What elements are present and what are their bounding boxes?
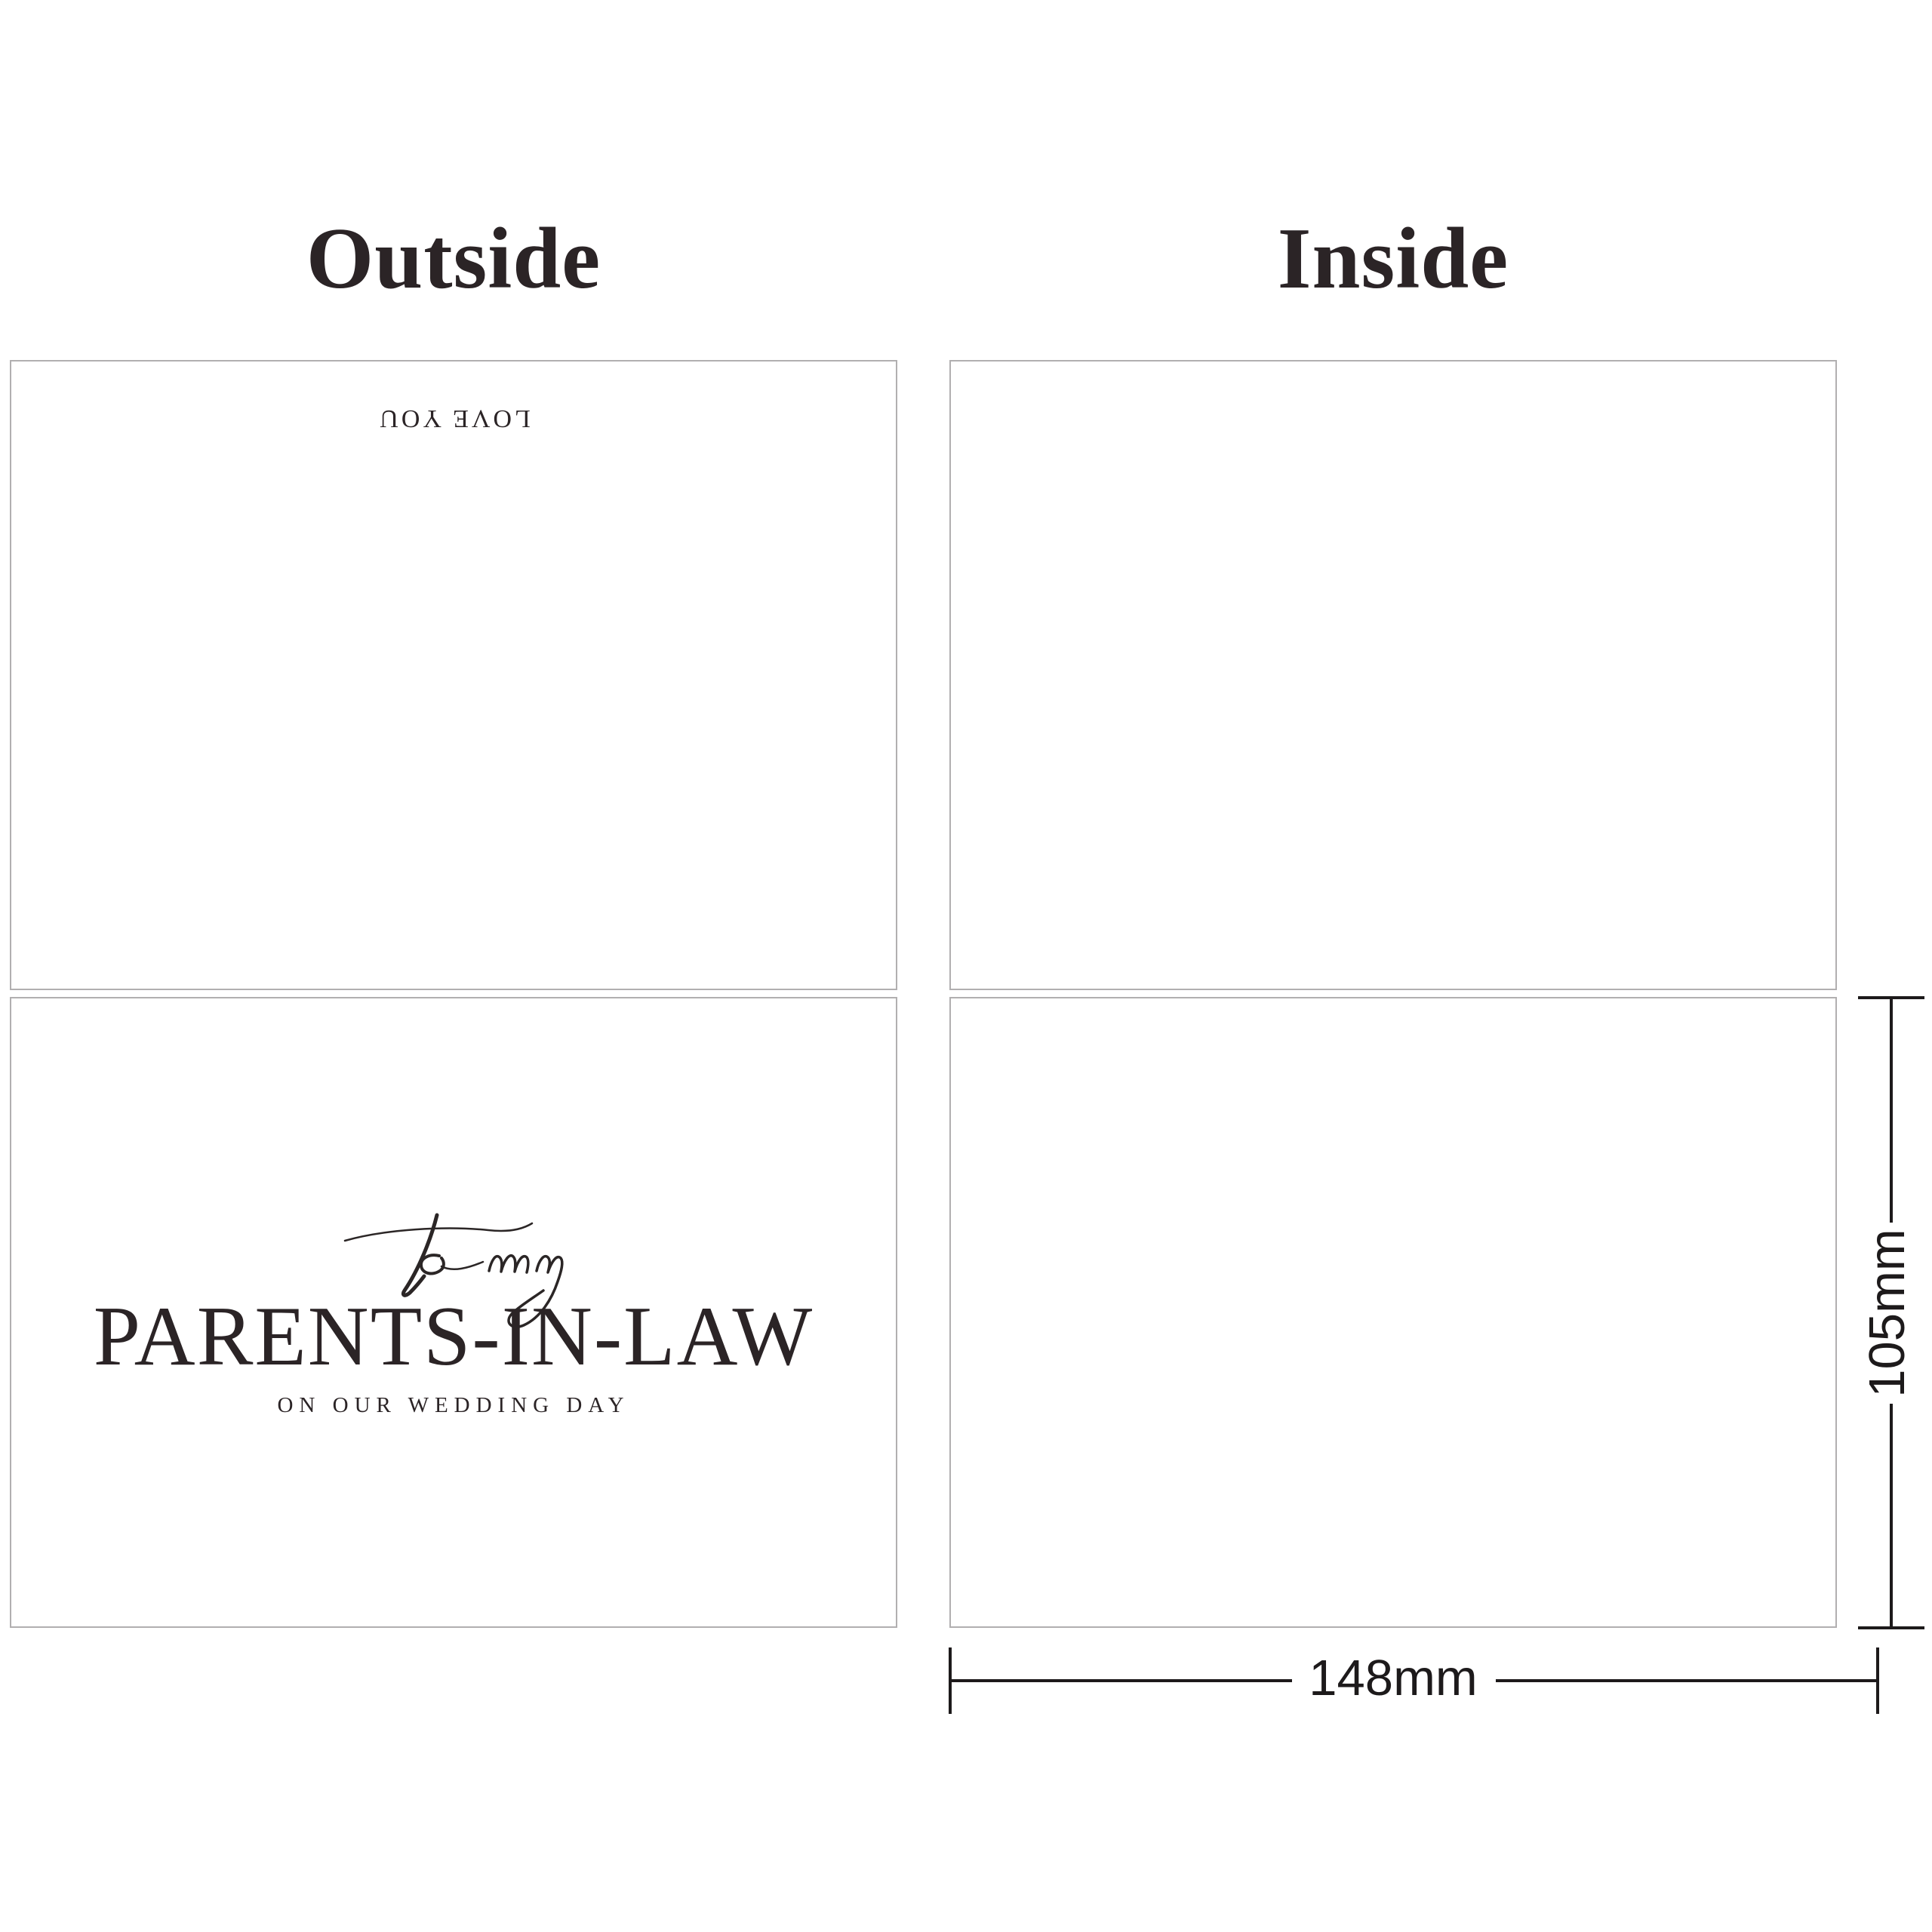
card-template-sheet: Outside Inside LOVE YOU PARENTS-IN-LAW O… <box>0 0 1932 1932</box>
height-dimension-line-lower <box>1890 1404 1893 1628</box>
width-dimension-right-cap <box>1876 1647 1879 1714</box>
width-dimension-label: 148mm <box>1280 1653 1506 1703</box>
height-dimension-line-upper <box>1890 998 1893 1223</box>
inside-top-panel <box>949 360 1837 990</box>
inside-bottom-panel <box>949 997 1837 1628</box>
inside-section-heading: Inside <box>949 215 1837 313</box>
outside-front-panel: PARENTS-IN-LAW ON OUR WEDDING DAY <box>10 997 897 1628</box>
height-dimension-label: 105mm <box>1862 1200 1915 1426</box>
outside-section-heading: Outside <box>10 215 897 313</box>
front-subtitle-text: ON OUR WEDDING DAY <box>11 1395 896 1417</box>
front-title-text: PARENTS-IN-LAW <box>11 1294 896 1379</box>
height-dimension-bottom-cap <box>1858 1626 1924 1629</box>
width-dimension-line-left <box>950 1679 1292 1682</box>
back-greeting-text: LOVE YOU <box>11 405 896 431</box>
outside-back-panel: LOVE YOU <box>10 360 897 990</box>
width-dimension-line-right <box>1496 1679 1878 1682</box>
